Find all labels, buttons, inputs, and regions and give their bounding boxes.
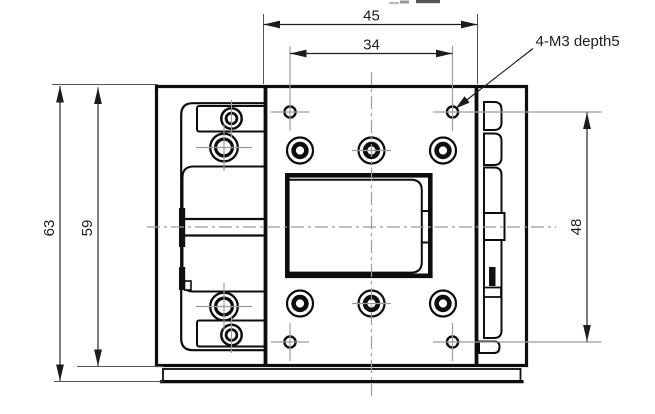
right-rail-lock-tab bbox=[489, 267, 496, 286]
counterbore-hole bbox=[287, 291, 313, 317]
arrowhead bbox=[264, 21, 281, 29]
dim-text-overall-height: 63 bbox=[41, 220, 58, 237]
right-rail-bottom-piece bbox=[479, 342, 500, 354]
arrowhead bbox=[94, 88, 102, 105]
counterbore-hole bbox=[430, 291, 456, 317]
technical-drawing-canvas: 45 34 63 59 48 4-M3 depth5 bbox=[0, 0, 655, 414]
right-rail-second-piece bbox=[484, 134, 502, 166]
arrowhead bbox=[94, 350, 102, 367]
arrowhead bbox=[56, 365, 64, 382]
dim-text-hole-spacing-y: 48 bbox=[568, 219, 585, 236]
right-rail-top-piece bbox=[484, 102, 502, 130]
dim-text-hole-spacing-x: 34 bbox=[363, 37, 380, 54]
right-rail-small-step bbox=[484, 288, 501, 298]
right-rail-long-piece bbox=[484, 168, 502, 339]
counterbore-hole bbox=[430, 138, 456, 164]
arrowhead bbox=[56, 86, 64, 103]
arrowhead bbox=[290, 50, 307, 58]
fragment-mark bbox=[400, 1, 409, 4]
left-rail-tab-foot bbox=[185, 281, 192, 290]
stage-top-view-drawing: 45 34 63 59 48 4-M3 depth5 bbox=[0, 0, 655, 414]
dim-text-body-height: 59 bbox=[79, 220, 96, 237]
aperture-frame bbox=[287, 175, 430, 275]
base-plate-outline bbox=[163, 369, 521, 382]
arrowhead bbox=[461, 21, 478, 29]
fragment-mark bbox=[416, 0, 440, 3]
dim-text-table-width: 45 bbox=[363, 8, 380, 25]
tapped-hole-callout-text: 4-M3 depth5 bbox=[536, 33, 620, 50]
arrowhead bbox=[583, 325, 591, 342]
counterbore-hole bbox=[287, 138, 313, 164]
arrowhead bbox=[436, 50, 453, 58]
cropped-dimension-fragment bbox=[389, 0, 440, 4]
part-geometry bbox=[157, 87, 527, 382]
base-plate bbox=[162, 369, 523, 382]
fragment-mark bbox=[389, 2, 399, 4]
arrowhead bbox=[583, 113, 591, 130]
center-aperture bbox=[287, 175, 430, 275]
